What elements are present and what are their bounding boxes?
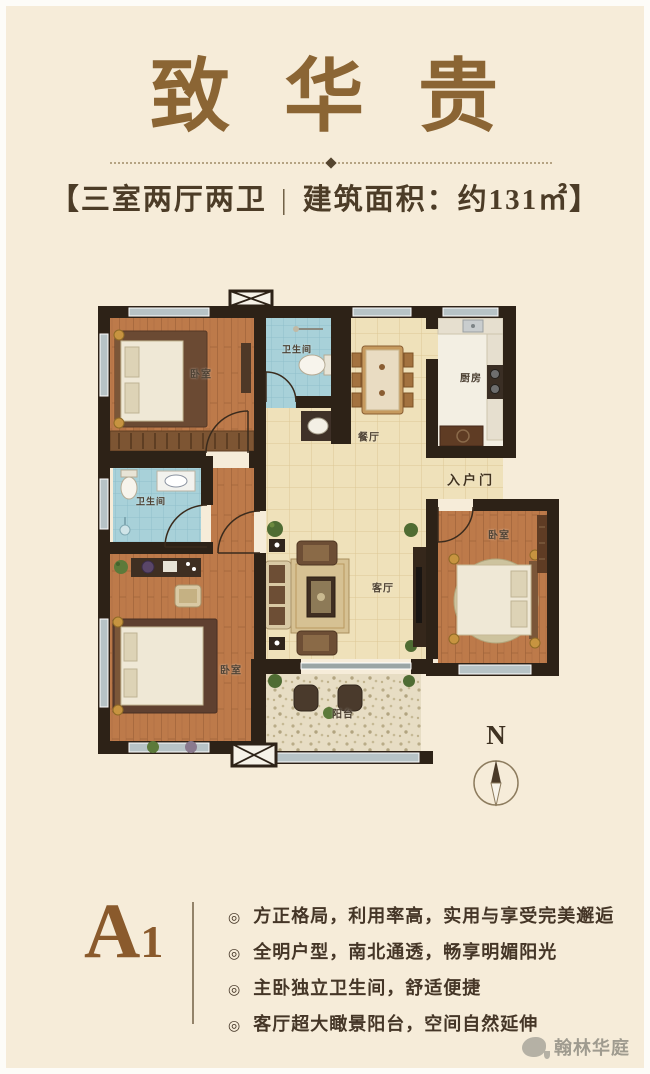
vertical-divider	[192, 902, 194, 1024]
room-label-living: 客厅	[372, 580, 394, 595]
plan-code-letter: A	[84, 887, 140, 974]
bullet-icon: ◎	[228, 979, 240, 1002]
bullet-icon: ◎	[228, 907, 240, 930]
brand-watermark: 翰林华庭	[522, 1034, 630, 1060]
page-title: 致 华 贵	[6, 54, 644, 142]
feature-text: 客厅超大瞰景阳台，空间自然延伸	[253, 1013, 538, 1036]
compass-rose-icon	[470, 754, 522, 810]
poster-page: 致 华 贵 【三室两厅两卫|建筑面积：约131㎡】	[0, 0, 650, 1074]
room-label-dining: 餐厅	[358, 429, 380, 444]
plan-code-number: 1	[140, 916, 163, 967]
room-label-bathroom-w: 卫生间	[136, 495, 166, 508]
area-text: 建筑面积：约131㎡	[303, 184, 570, 216]
brand-logo-icon	[522, 1037, 546, 1057]
balcony-door-sill	[301, 663, 411, 669]
room-label-bedroom-e: 卧室	[488, 527, 510, 542]
feature-list: ◎ 方正格局，利用率高，实用与享受完美邂逅 ◎ 全明户型，南北通透，畅享明媚阳光…	[228, 905, 614, 1049]
feature-item: ◎ 方正格局，利用率高，实用与享受完美邂逅	[228, 905, 614, 930]
diamond-ornament	[325, 157, 336, 168]
bracket-right: 】	[569, 184, 600, 216]
room-label-entry: 入户门	[447, 470, 495, 489]
brand-name: 翰林华庭	[554, 1034, 630, 1060]
room-dining	[352, 346, 413, 414]
layout-type: 三室两厅两卫	[81, 184, 267, 216]
bullet-icon: ◎	[228, 943, 240, 966]
feature-item: ◎ 主卧独立卫生间，舒适便捷	[228, 977, 614, 1002]
bullet-icon: ◎	[228, 1015, 240, 1038]
subtitle: 【三室两厅两卫|建筑面积：约131㎡】	[6, 176, 644, 218]
plan-code: A1	[84, 892, 163, 970]
dotted-divider	[110, 162, 552, 164]
compass: N	[464, 722, 528, 810]
compass-n-label: N	[486, 720, 506, 750]
room-label-balcony: 阳台	[332, 706, 354, 721]
feature-text: 主卧独立卫生间，舒适便捷	[253, 977, 481, 1000]
floorplan: 卧室 卫生间 餐厅 厨房 入户门 卫生间 卧室 客厅 阳台 卧室 N	[91, 289, 571, 769]
feature-text: 全明户型，南北通透，畅享明媚阳光	[253, 941, 557, 964]
room-label-bathroom-n: 卫生间	[282, 343, 312, 356]
feature-item: ◎ 全明户型，南北通透，畅享明媚阳光	[228, 941, 614, 966]
room-label-bedroom-sw: 卧室	[220, 662, 242, 677]
subtitle-pipe: |	[281, 184, 289, 216]
bracket-left: 【	[50, 184, 81, 216]
feature-text: 方正格局，利用率高，实用与享受完美邂逅	[253, 905, 614, 928]
room-label-bedroom-nw: 卧室	[190, 366, 212, 381]
room-label-kitchen: 厨房	[460, 370, 482, 385]
